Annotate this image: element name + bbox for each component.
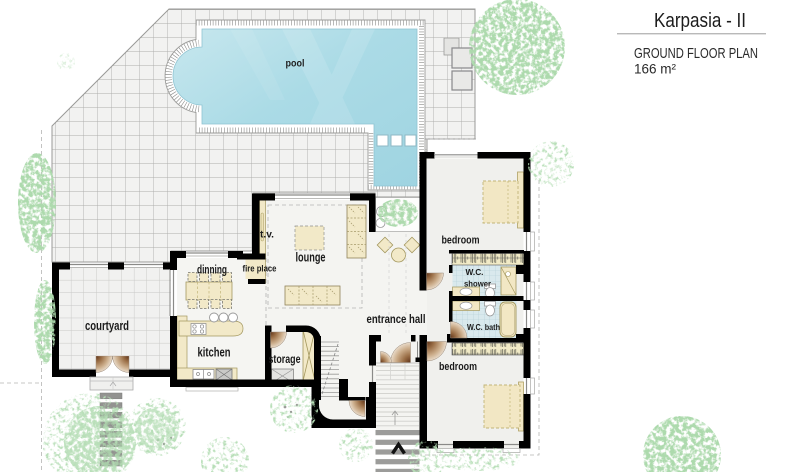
svg-text:Karpasia - II: Karpasia - II <box>654 9 746 32</box>
svg-text:fire place: fire place <box>243 264 277 274</box>
svg-text:courtyard: courtyard <box>85 319 129 333</box>
svg-text:bedroom: bedroom <box>439 361 477 373</box>
svg-text:pool: pool <box>286 58 305 70</box>
svg-text:bedroom: bedroom <box>442 235 480 247</box>
svg-text:entrance hall: entrance hall <box>367 314 426 326</box>
svg-text:W.C. bath: W.C. bath <box>467 322 500 332</box>
svg-text:lounge: lounge <box>296 251 326 265</box>
svg-text:storage: storage <box>269 354 301 366</box>
svg-text:dinning: dinning <box>197 263 227 277</box>
svg-text:W.C.: W.C. <box>466 267 484 277</box>
svg-text:166 m²: 166 m² <box>634 62 677 77</box>
svg-text:shower: shower <box>464 279 492 289</box>
svg-text:GROUND FLOOR PLAN: GROUND FLOOR PLAN <box>634 46 758 62</box>
svg-text:kitchen: kitchen <box>198 346 231 360</box>
svg-text:t.v.: t.v. <box>260 229 274 241</box>
